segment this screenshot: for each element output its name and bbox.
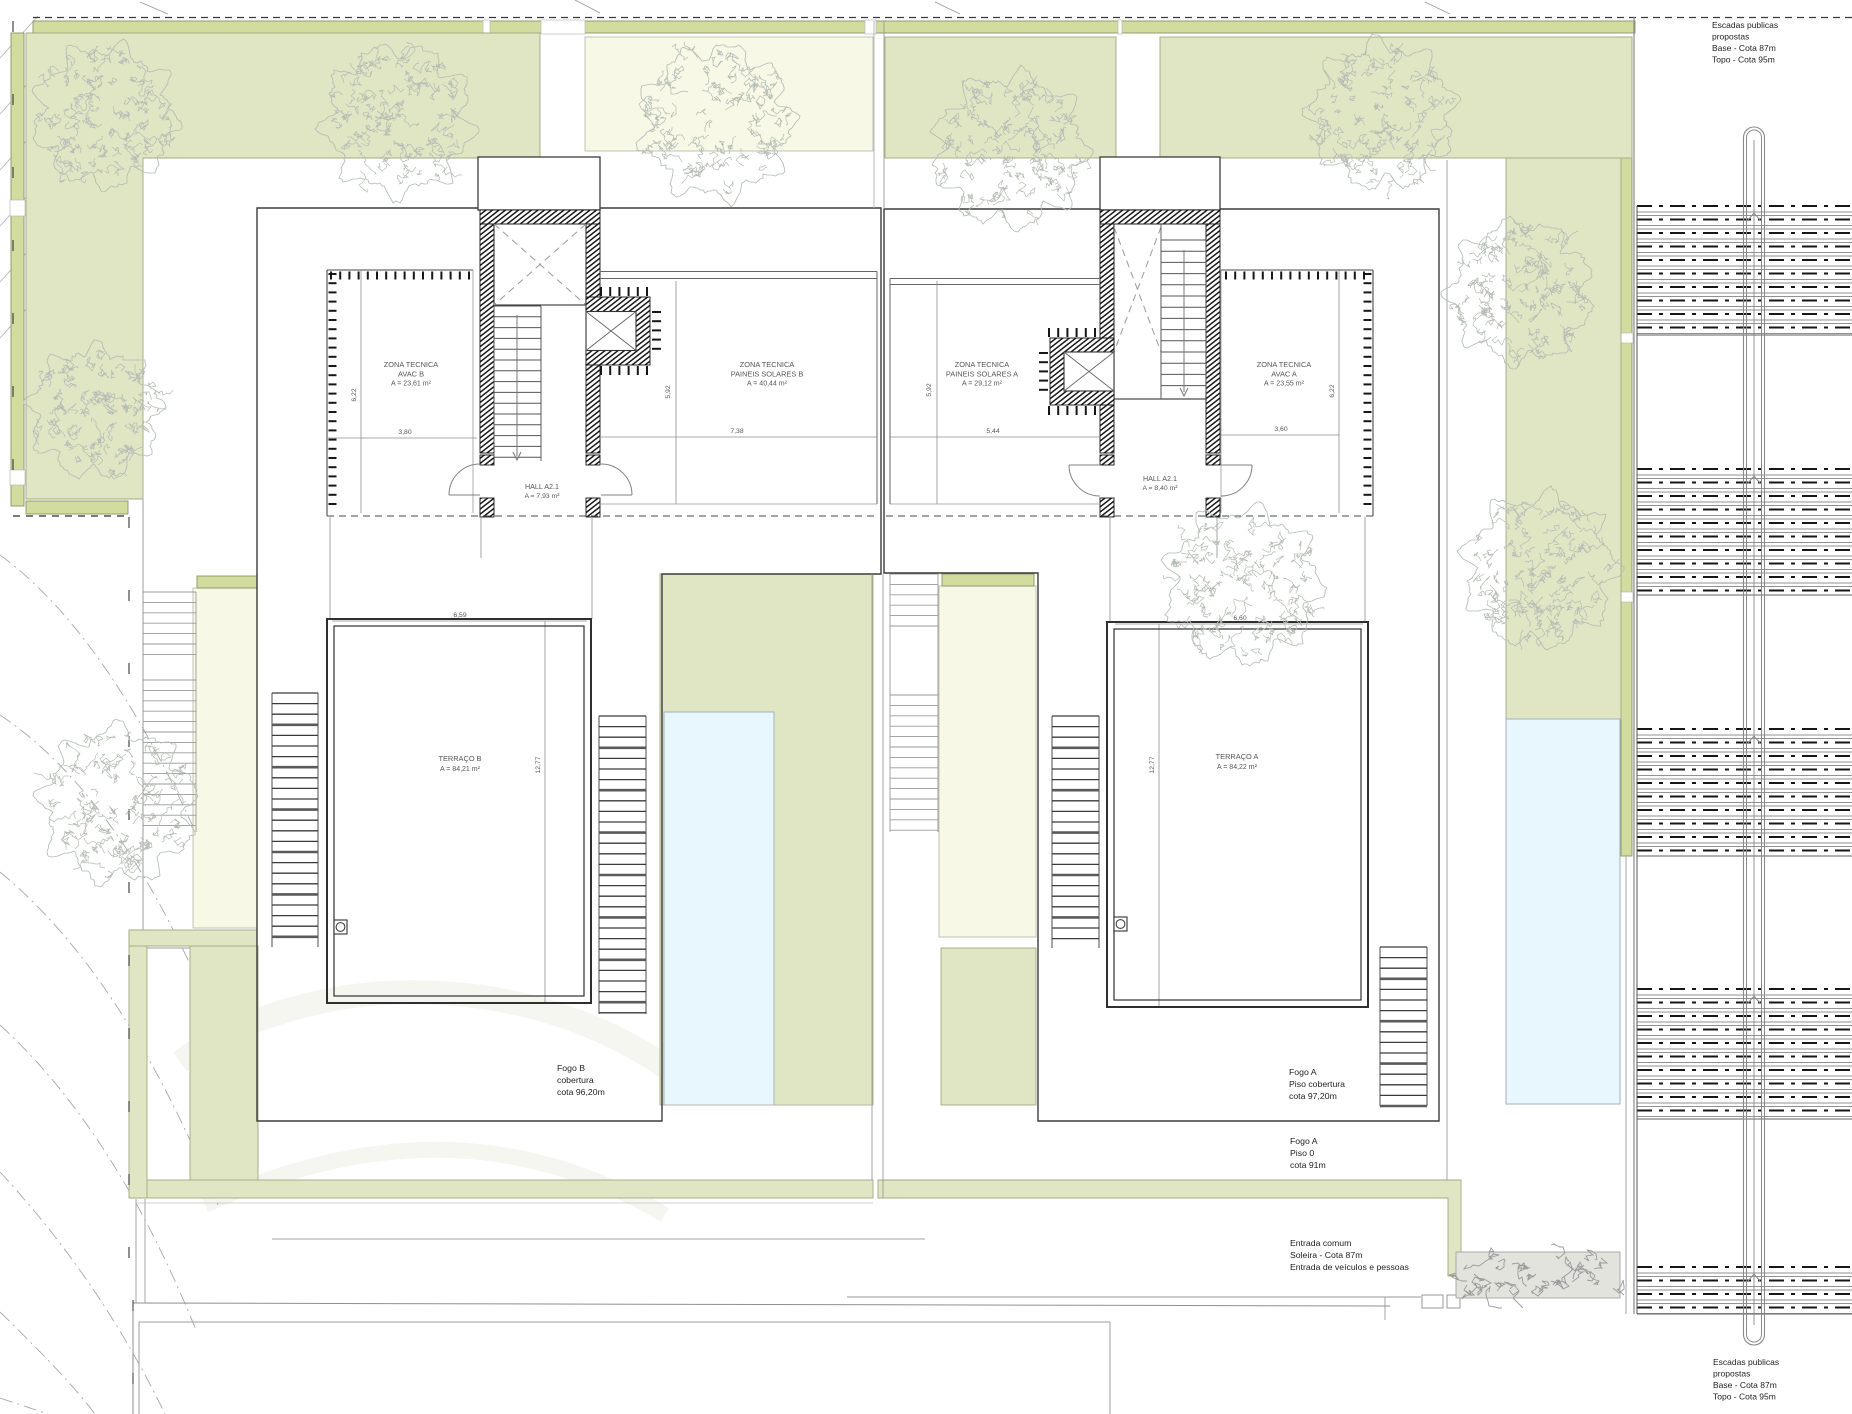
svg-text:Fogo A: Fogo A: [1290, 1136, 1318, 1146]
svg-text:propostas: propostas: [1713, 1369, 1750, 1379]
svg-text:12,77: 12,77: [1149, 756, 1156, 773]
svg-text:TERRAÇO B: TERRAÇO B: [438, 754, 481, 763]
svg-text:PAINEIS SOLARES B: PAINEIS SOLARES B: [731, 369, 804, 378]
svg-text:cota 96,20m: cota 96,20m: [557, 1087, 605, 1097]
svg-text:A = 7,93 m²: A = 7,93 m²: [525, 493, 561, 500]
svg-text:Entrada comum: Entrada comum: [1290, 1238, 1351, 1248]
svg-text:3,60: 3,60: [1274, 426, 1287, 433]
svg-text:7,38: 7,38: [730, 428, 743, 435]
svg-text:A = 84,21 m²: A = 84,21 m²: [440, 766, 481, 773]
svg-text:cota 91m: cota 91m: [1290, 1160, 1326, 1170]
svg-text:A = 29,12 m²: A = 29,12 m²: [962, 381, 1003, 388]
svg-text:3,80: 3,80: [398, 429, 411, 436]
svg-text:propostas: propostas: [1712, 32, 1749, 42]
svg-text:5,92: 5,92: [926, 383, 933, 396]
svg-text:A = 8,40 m²: A = 8,40 m²: [1143, 485, 1179, 492]
svg-text:PAINEIS SOLARES A: PAINEIS SOLARES A: [946, 369, 1018, 378]
svg-text:Topo - Cota 95m: Topo - Cota 95m: [1712, 55, 1775, 65]
svg-text:TERRAÇO A: TERRAÇO A: [1216, 752, 1259, 761]
svg-text:Piso cobertura: Piso cobertura: [1289, 1079, 1345, 1089]
svg-text:AVAC A: AVAC A: [1271, 369, 1297, 378]
svg-text:5,44: 5,44: [986, 428, 999, 435]
svg-text:Base - Cota 87m: Base - Cota 87m: [1713, 1380, 1777, 1390]
svg-text:Entrada de veículos e pessoas: Entrada de veículos e pessoas: [1290, 1262, 1409, 1272]
svg-text:Soleira - Cota 87m: Soleira - Cota 87m: [1290, 1250, 1362, 1260]
svg-text:6,22: 6,22: [351, 388, 358, 401]
svg-text:Topo - Cota 95m: Topo - Cota 95m: [1713, 1392, 1776, 1402]
svg-text:cobertura: cobertura: [557, 1075, 594, 1085]
svg-text:6,22: 6,22: [1329, 384, 1336, 397]
svg-text:6,59: 6,59: [453, 612, 466, 619]
svg-text:ZONA TECNICA: ZONA TECNICA: [740, 360, 795, 369]
svg-text:12,77: 12,77: [535, 756, 542, 773]
svg-text:HALL A2.1: HALL A2.1: [1143, 474, 1177, 483]
svg-text:Fogo B: Fogo B: [557, 1063, 585, 1073]
svg-text:cota 97,20m: cota 97,20m: [1289, 1091, 1337, 1101]
svg-text:A = 40,44 m²: A = 40,44 m²: [747, 381, 788, 388]
svg-text:A = 84,22 m²: A = 84,22 m²: [1217, 764, 1258, 771]
svg-text:AVAC B: AVAC B: [398, 369, 424, 378]
svg-text:Fogo A: Fogo A: [1289, 1067, 1317, 1077]
svg-text:HALL A2.1: HALL A2.1: [525, 482, 559, 491]
svg-text:5,92: 5,92: [665, 385, 672, 398]
svg-text:Piso 0: Piso 0: [1290, 1148, 1314, 1158]
svg-text:Base - Cota 87m: Base - Cota 87m: [1712, 43, 1776, 53]
svg-text:6,60: 6,60: [1233, 615, 1246, 622]
svg-text:ZONA TECNICA: ZONA TECNICA: [955, 360, 1010, 369]
svg-text:A = 23,61 m²: A = 23,61 m²: [391, 381, 432, 388]
svg-text:ZONA TECNICA: ZONA TECNICA: [1257, 360, 1312, 369]
svg-text:ZONA TECNICA: ZONA TECNICA: [384, 360, 439, 369]
svg-text:A = 23,55 m²: A = 23,55 m²: [1264, 381, 1305, 388]
svg-text:Escadas publicas: Escadas publicas: [1712, 20, 1778, 30]
svg-text:Escadas publicas: Escadas publicas: [1713, 1357, 1779, 1367]
